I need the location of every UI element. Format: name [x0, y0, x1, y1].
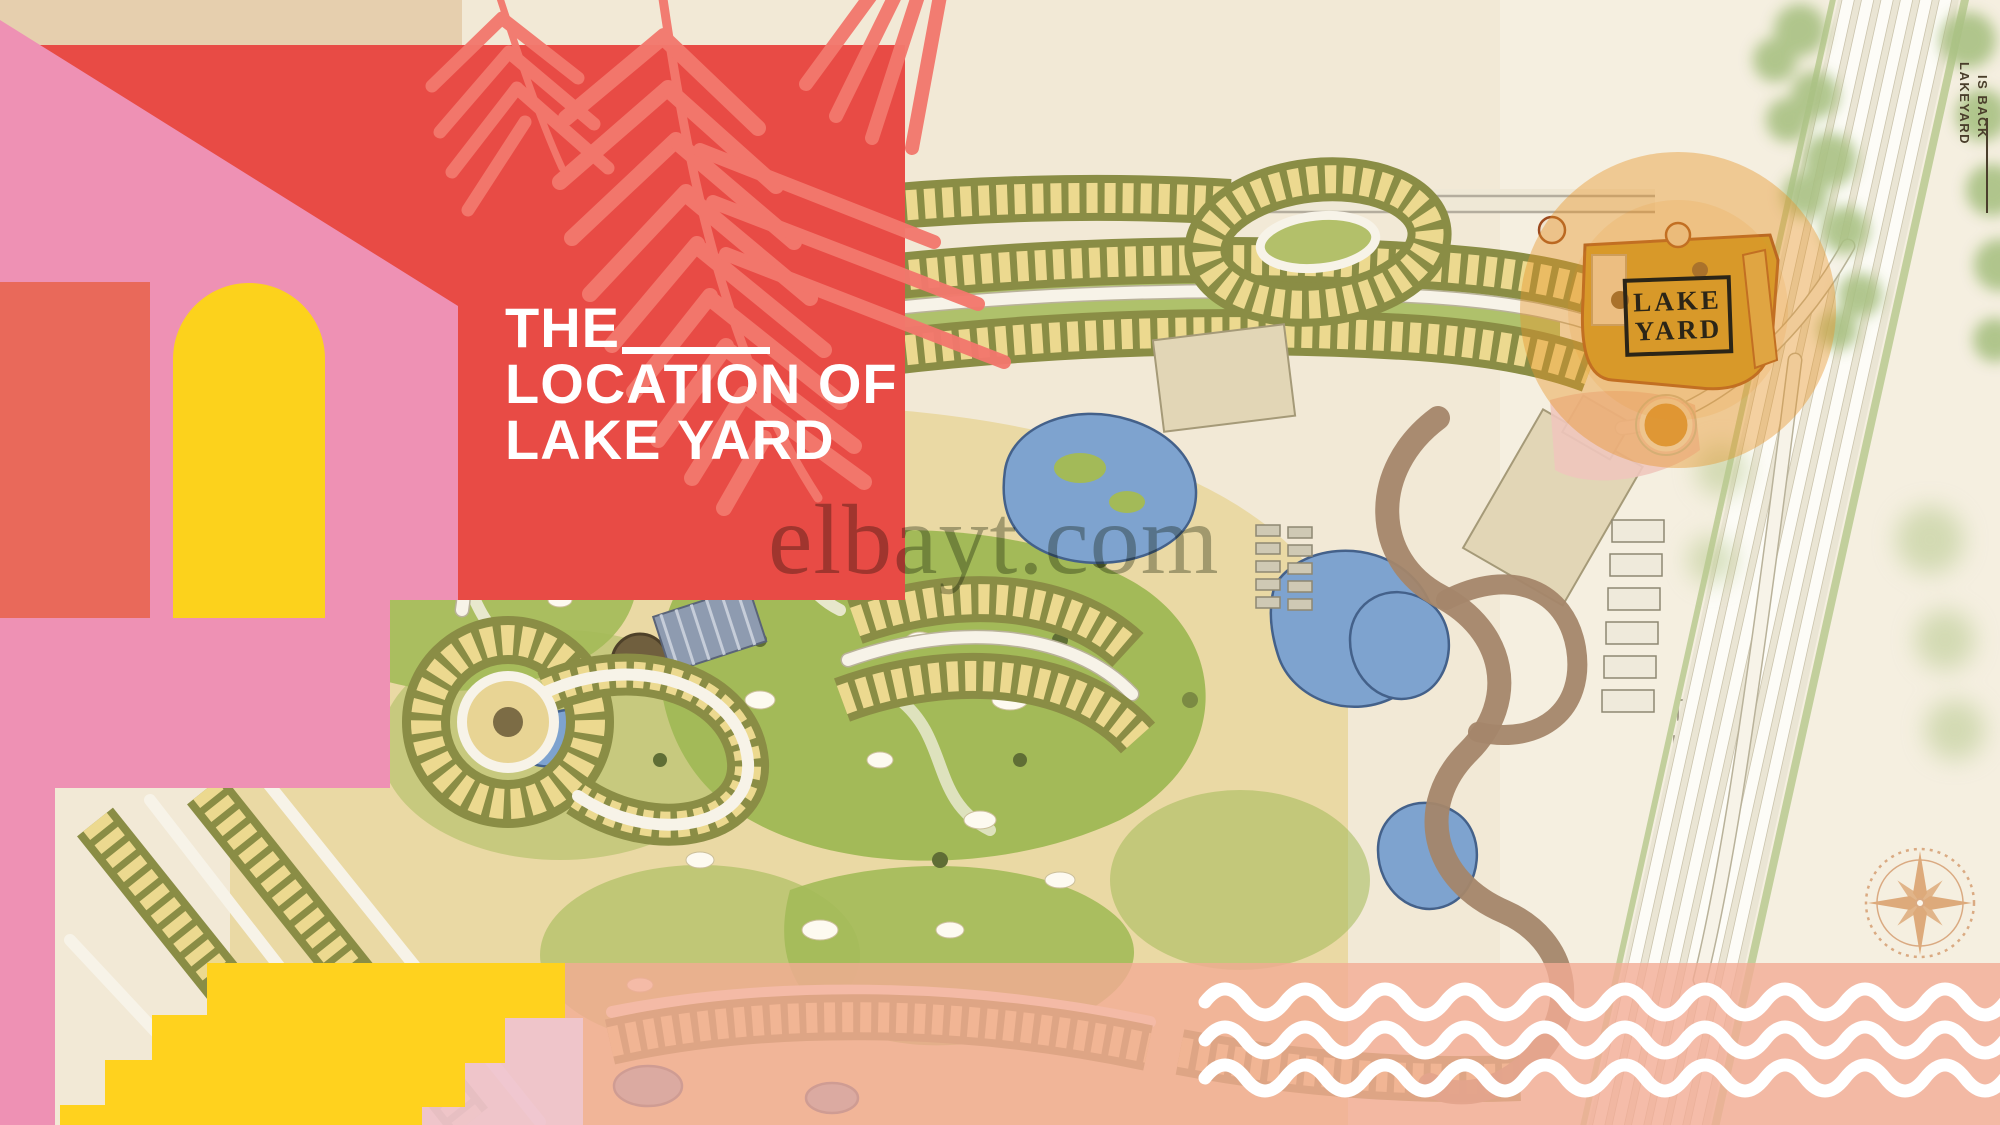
title-line-3: LAKE YARD: [505, 412, 898, 468]
coral-rect: [0, 282, 150, 618]
lake-yard-badge: LAKE YARD: [1623, 275, 1734, 357]
title-dash: [622, 347, 770, 354]
tan-strip: [0, 0, 462, 46]
badge-line-2: YARD: [1634, 314, 1722, 346]
waves-icon: [1205, 989, 2000, 1091]
edge-note-line-1: LAKEYARD: [1957, 62, 1972, 145]
location-title: THE LOCATION OF LAKE YARD: [505, 300, 898, 468]
watermark: elbayt.com: [768, 482, 1220, 597]
arch-door-icon: [173, 283, 325, 618]
title-line-2: LOCATION OF: [505, 356, 898, 412]
badge-line-1: LAKE: [1633, 285, 1722, 317]
brochure-page: THE LOCATION OF LAKE YARD elbayt.com LAK…: [0, 0, 2000, 1125]
edge-note-rule: [1986, 118, 1988, 213]
